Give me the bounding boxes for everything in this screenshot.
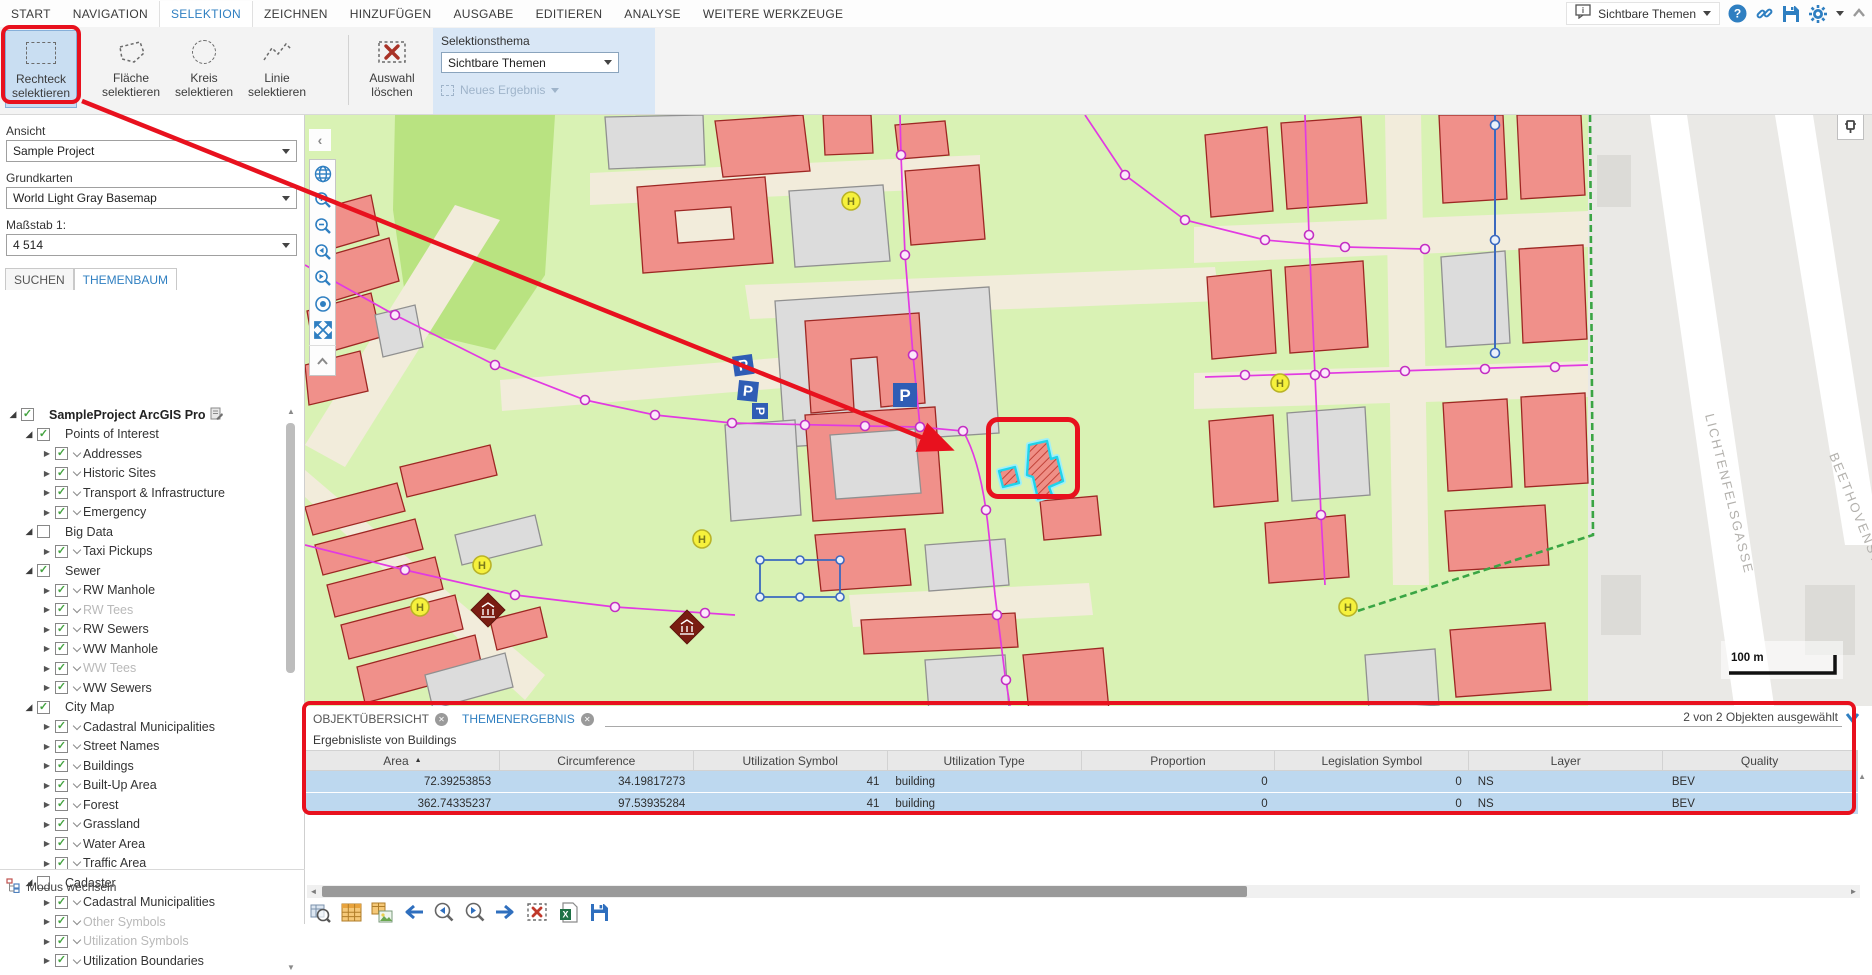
tree-expander-icon[interactable]: ▶	[40, 625, 54, 634]
chevron-down-icon	[604, 60, 612, 65]
tab-hinzufuegen[interactable]: HINZUFÜGEN	[339, 1, 443, 27]
dashed-zigzag-icon	[261, 36, 293, 68]
tree-expander-icon[interactable]: ▶	[40, 664, 54, 673]
tree-expander-icon[interactable]: ▶	[40, 839, 54, 848]
tree-expander-icon[interactable]: ▶	[40, 469, 54, 478]
dashed-polygon-icon	[115, 36, 147, 68]
tree-item[interactable]: ▶ ✓ Emergency	[0, 503, 283, 523]
table-cell: 0	[1276, 771, 1470, 792]
table-header-row: Area▲Circumference▲Utilization Symbol▲Ut…	[305, 750, 1858, 771]
panel-tabs: SUCHEN THEMENBAUM	[5, 268, 304, 290]
tree-checkbox[interactable]: ✓	[55, 935, 68, 948]
tree-checkbox[interactable]: ✓	[55, 837, 68, 850]
svg-text:?: ?	[1734, 7, 1741, 21]
globe-icon[interactable]	[312, 163, 333, 184]
tree-item[interactable]: ▶ ✓ Street Names	[0, 737, 283, 757]
zoom-to-record-icon[interactable]	[309, 901, 331, 923]
layer-legend-expand-icon[interactable]	[72, 839, 82, 849]
results-dock: OBJEKTÜBERSICHT ✕ THEMENERGEBNIS ✕ 2 von…	[305, 706, 1872, 924]
mode-switch-button[interactable]: Modus wechseln	[0, 869, 305, 896]
table-body: 72.3925385334.1981727341building00NSBEV3…	[305, 771, 1858, 815]
tabs-underline	[605, 726, 1842, 727]
project-edit-icon	[210, 407, 223, 423]
close-icon[interactable]: ✕	[435, 713, 448, 726]
locate-icon[interactable]	[312, 293, 333, 314]
tree-checkbox[interactable]: ✓	[55, 681, 68, 694]
layer-legend-expand-icon[interactable]	[72, 917, 82, 927]
table-cell: building	[887, 771, 1081, 792]
table-row[interactable]: 72.3925385334.1981727341building00NSBEV	[305, 771, 1858, 793]
layer-legend-expand-icon[interactable]	[72, 605, 82, 615]
tree-checkbox[interactable]: ✓	[55, 720, 68, 733]
table-cell: 97.53935284	[499, 793, 693, 814]
scrollbar-thumb[interactable]	[322, 886, 1247, 897]
column-header[interactable]: Utilization Type▲	[888, 751, 1082, 770]
column-header[interactable]: Circumference▲	[500, 751, 694, 770]
tree-expander-icon[interactable]: ▶	[40, 859, 54, 868]
map-canvas[interactable]: LICHTENFELSGASSE BEETHOVENSTR.	[305, 115, 1872, 712]
chevron-down-icon	[282, 149, 290, 154]
tree-checkbox[interactable]: ✓	[55, 623, 68, 636]
tree-expander-icon[interactable]: ▶	[40, 488, 54, 497]
view-label: Ansicht	[6, 124, 304, 138]
tree-item-label: Street Names	[83, 739, 159, 753]
tree-item-label: RW Manhole	[83, 583, 155, 597]
table-scroll-up-icon[interactable]: ▲	[1858, 772, 1866, 781]
tab-weitere-werkzeuge[interactable]: WEITERE WERKZEUGE	[692, 1, 854, 27]
close-icon[interactable]: ✕	[581, 713, 594, 726]
layer-legend-expand-icon[interactable]	[72, 800, 82, 810]
previous-record-icon[interactable]	[402, 901, 424, 923]
selection-theme-select[interactable]: Sichtbare Themen	[441, 52, 619, 73]
tab-themenergebnis[interactable]: THEMENERGEBNIS ✕	[454, 708, 600, 730]
result-list-title: Ergebnisliste von Buildings	[313, 733, 456, 747]
layer-legend-expand-icon[interactable]	[38, 410, 48, 420]
scale-select[interactable]: 4 514	[6, 234, 297, 256]
hydrant-icon: H	[416, 602, 424, 614]
tree-item-label: WW Sewers	[83, 681, 152, 695]
hydrant-icon: H	[698, 534, 706, 546]
scale-bar-label: 100 m	[1731, 652, 1764, 664]
info-bubble-icon: i	[1575, 4, 1591, 24]
tree-item-label: Grassland	[83, 817, 140, 831]
tree-expander-icon[interactable]: ▶	[40, 547, 54, 556]
layer-legend-expand-icon[interactable]	[72, 956, 82, 966]
basemap-select[interactable]: World Light Gray Basemap	[6, 187, 297, 209]
tree-expander-icon[interactable]: ▶	[40, 761, 54, 770]
tree-checkbox[interactable]: ✓	[55, 467, 68, 480]
tree-mode-icon	[6, 878, 20, 896]
zoom-previous-record-icon[interactable]	[433, 901, 455, 923]
tree-item[interactable]: ▶ ✓ WW Tees	[0, 659, 283, 679]
tree-expander-icon[interactable]: ▶	[40, 956, 54, 965]
tree-expander-icon[interactable]: ▶	[40, 683, 54, 692]
tree-item[interactable]: ▶ ✓ RW Sewers	[0, 620, 283, 640]
table-cell: NS	[1470, 793, 1664, 814]
tree-checkbox[interactable]: ✓	[55, 642, 68, 655]
layer-legend-expand-icon[interactable]	[72, 488, 82, 498]
tree-checkbox[interactable]: ✓	[37, 701, 50, 714]
table-row[interactable]: 362.7433523797.5393528441building00NSBEV	[305, 793, 1858, 815]
tree-item-label: WW Manhole	[83, 642, 158, 656]
tree-item[interactable]: ▶ ✓ WW Sewers	[0, 678, 283, 698]
tree-checkbox[interactable]: ✓	[55, 857, 68, 870]
tree-item-label: Built-Up Area	[83, 778, 157, 792]
next-record-icon[interactable]	[495, 901, 517, 923]
hydrant-icon: H	[478, 560, 486, 572]
select-circle-button[interactable]: Kreisselektieren	[168, 30, 240, 108]
layer-legend-expand-icon[interactable]	[72, 936, 82, 946]
share-link-button[interactable]	[1755, 4, 1774, 23]
layer-legend-expand-icon[interactable]	[72, 507, 82, 517]
tree-item[interactable]: ◢ ✓ Sewer	[0, 561, 283, 581]
tab-themenbaum[interactable]: THEMENBAUM	[74, 268, 177, 290]
layer-legend-expand-icon[interactable]	[72, 585, 82, 595]
tree-checkbox[interactable]: ✓	[55, 759, 68, 772]
hydrant-icon: H	[1276, 378, 1284, 390]
chevron-down-icon	[551, 88, 559, 93]
layer-legend-expand-icon[interactable]	[72, 449, 82, 459]
scroll-down-icon[interactable]: ▼	[284, 961, 298, 975]
tree-expander-icon[interactable]: ▶	[40, 605, 54, 614]
tree-checkbox[interactable]: ✓	[55, 954, 68, 967]
overview-map-icon[interactable]	[1837, 115, 1864, 140]
layer-legend-expand-icon[interactable]	[72, 624, 82, 634]
layer-legend-expand-icon[interactable]	[72, 761, 82, 771]
selection-status: 2 von 2 Objekten ausgewählt	[1683, 710, 1838, 724]
table-cell: 0	[1082, 771, 1276, 792]
tree-expander-icon[interactable]: ◢	[22, 429, 36, 440]
column-header[interactable]: Area▲	[306, 751, 500, 770]
layer-legend-expand-icon[interactable]	[72, 644, 82, 654]
chevron-down-icon	[282, 196, 290, 201]
layer-legend-expand-icon[interactable]	[72, 858, 82, 868]
tree-item-label: Big Data	[65, 525, 113, 539]
clear-selection-icon	[377, 36, 407, 68]
select-polygon-button[interactable]: Flächeselektieren	[95, 30, 167, 108]
tree-checkbox[interactable]: ✓	[55, 662, 68, 675]
svg-text:i: i	[1582, 6, 1584, 15]
tree-item-label: Emergency	[83, 505, 146, 519]
ribbon-toolbar: Rechteckselektieren Flächeselektieren Kr…	[0, 27, 1872, 115]
ribbon-separator	[348, 35, 349, 105]
tree-checkbox[interactable]: ✓	[55, 915, 68, 928]
tab-zeichnen[interactable]: ZEICHNEN	[253, 1, 339, 27]
zoom-out-icon[interactable]	[312, 215, 333, 236]
tree-checkbox[interactable]: ✓	[55, 545, 68, 558]
next-extent-icon[interactable]	[312, 267, 333, 288]
layer-legend-expand-icon[interactable]	[72, 819, 82, 829]
tree-expander-icon[interactable]: ▶	[40, 800, 54, 809]
tree-checkbox[interactable]: ✓	[55, 584, 68, 597]
tree-expander-icon[interactable]: ▶	[40, 508, 54, 517]
tree-item-label: Utilization Symbols	[83, 934, 189, 948]
tree-expander-icon[interactable]: ◢	[6, 409, 20, 420]
tree-expander-icon[interactable]: ▶	[40, 722, 54, 731]
column-header[interactable]: Utilization Symbol▲	[694, 751, 888, 770]
tree-item[interactable]: ▶ ✓ Taxi Pickups	[0, 542, 283, 562]
previous-extent-icon[interactable]	[312, 241, 333, 262]
tree-item-label: Cadastral Municipalities	[83, 895, 215, 909]
tree-expander-icon[interactable]: ▶	[40, 449, 54, 458]
tree-expander-icon[interactable]: ▶	[40, 781, 54, 790]
hydrant-icon: H	[1344, 602, 1352, 614]
tree-checkbox[interactable]: ✓	[21, 408, 34, 421]
dashed-circle-icon	[192, 36, 216, 68]
tree-item[interactable]: ▶ ✓ Transport & Infrastructure	[0, 483, 283, 503]
tree-item-label: SampleProject ArcGIS Pro	[49, 408, 206, 422]
table-cell: BEV	[1664, 771, 1858, 792]
tree-item-label: Addresses	[83, 447, 142, 461]
tree-item-label: Cadastral Municipalities	[83, 720, 215, 734]
tree-expander-icon[interactable]: ◢	[22, 526, 36, 537]
collapse-ribbon-icon[interactable]	[1852, 5, 1866, 23]
tree-item[interactable]: ▶ ✓ Buildings	[0, 756, 283, 776]
dashed-rectangle-icon	[26, 37, 56, 69]
layer-legend-expand-icon[interactable]	[72, 546, 82, 556]
tree-item-label: RW Tees	[83, 603, 133, 617]
tree-expander-icon[interactable]: ▶	[40, 917, 54, 926]
table-cell: 34.19817273	[499, 771, 693, 792]
settings-gear-button[interactable]	[1808, 4, 1828, 24]
tab-analyse[interactable]: ANALYSE	[613, 1, 692, 27]
table-map-link-icon[interactable]	[371, 901, 393, 923]
excel-export-icon[interactable]: X	[557, 901, 579, 923]
tree-item[interactable]: ▶ ✓ RW Manhole	[0, 581, 283, 601]
tree-item[interactable]: ◢ Big Data	[0, 522, 283, 542]
scroll-right-icon[interactable]: ►	[1847, 885, 1860, 898]
tab-navigation[interactable]: NAVIGATION	[62, 1, 159, 27]
tree-item[interactable]: ▶ ✓ Historic Sites	[0, 464, 283, 484]
zoom-in-icon[interactable]	[312, 189, 333, 210]
sort-asc-icon: ▲	[415, 757, 422, 764]
table-cell: 72.39253853	[305, 771, 499, 792]
map-toolbar	[309, 159, 336, 376]
layer-legend-expand-icon[interactable]	[72, 663, 82, 673]
tree-checkbox[interactable]: ✓	[37, 428, 50, 441]
basemap-label: Grundkarten	[6, 171, 304, 185]
tree-checkbox[interactable]: ✓	[55, 486, 68, 499]
tree-expander-icon[interactable]: ▶	[40, 586, 54, 595]
result-table: Area▲Circumference▲Utilization Symbol▲Ut…	[305, 750, 1858, 815]
tree-item[interactable]: ▶ ✓ Cadastral Municipalities	[0, 717, 283, 737]
scroll-up-icon[interactable]: ▲	[284, 405, 298, 419]
tab-selektion[interactable]: SELEKTION	[159, 1, 253, 27]
clear-table-selection-icon[interactable]	[526, 901, 548, 923]
table-cell: 362.74335237	[305, 793, 499, 814]
scroll-left-icon[interactable]: ◄	[307, 885, 320, 898]
ribbon-tab-bar: START NAVIGATION SELEKTION ZEICHNEN HINZ…	[0, 0, 1872, 27]
layer-legend-expand-icon[interactable]	[72, 897, 82, 907]
parking-icon: P	[742, 383, 754, 401]
tree-item-label: Points of Interest	[65, 427, 159, 441]
column-header[interactable]: Legislation Symbol▲	[1275, 751, 1469, 770]
gray-basemap-region: LICHTENFELSGASSE BEETHOVENSTR.	[1588, 115, 1872, 712]
layer-legend-expand-icon[interactable]	[54, 566, 64, 576]
left-panel: Ansicht Sample Project Grundkarten World…	[0, 115, 305, 924]
tree-item[interactable]: ▶ ✓ Built-Up Area	[0, 776, 283, 796]
tree-expander-icon[interactable]: ▶	[40, 644, 54, 653]
tree-checkbox[interactable]: ✓	[55, 779, 68, 792]
tree-item-label: RW Sewers	[83, 622, 149, 636]
select-rectangle-button[interactable]: Rechteckselektieren	[5, 30, 77, 108]
selection-theme-group: Selektionsthema Sichtbare Themen Neues E…	[433, 28, 655, 114]
tree-checkbox[interactable]: ✓	[55, 818, 68, 831]
tree-item[interactable]: ▶ ✓ Forest	[0, 795, 283, 815]
save-table-icon[interactable]	[588, 901, 610, 923]
tree-item[interactable]: ◢ ✓ SampleProject ArcGIS Pro	[0, 405, 283, 425]
tree-item-label: Historic Sites	[83, 466, 156, 480]
collapse-toolbar-icon[interactable]	[312, 351, 333, 372]
dashed-rectangle-icon	[441, 85, 454, 96]
tab-editieren[interactable]: EDITIEREN	[525, 1, 614, 27]
view-select[interactable]: Sample Project	[6, 140, 297, 162]
webgis-app: START NAVIGATION SELEKTION ZEICHNEN HINZ…	[0, 0, 1872, 924]
expand-panel-icon[interactable]	[1845, 711, 1860, 729]
scale-bar: 100 m	[1721, 641, 1843, 679]
layer-legend-expand-icon[interactable]	[54, 527, 64, 537]
tree-item-label: Transport & Infrastructure	[83, 486, 225, 500]
tab-objektuebersicht[interactable]: OBJEKTÜBERSICHT ✕	[305, 708, 454, 730]
table-cell: 0	[1082, 793, 1276, 814]
map-viewport[interactable]: LICHTENFELSGASSE BEETHOVENSTR.	[305, 115, 1872, 712]
layer-legend-expand-icon[interactable]	[72, 722, 82, 732]
tree-item[interactable]: ▶ ✓ Grassland	[0, 815, 283, 835]
tree-item[interactable]: ▶ ✓ Utilization Boundaries	[0, 951, 283, 971]
tree-item-label: Forest	[83, 798, 118, 812]
tree-item[interactable]: ◢ ✓ City Map	[0, 698, 283, 718]
table-cell: 41	[693, 771, 887, 792]
layer-legend-expand-icon[interactable]	[72, 683, 82, 693]
table-cell: 41	[693, 793, 887, 814]
tree-item[interactable]: ◢ ✓ Points of Interest	[0, 425, 283, 445]
tree-item[interactable]: ▶ ✓ RW Tees	[0, 600, 283, 620]
tree-item[interactable]: ▶ ✓ WW Manhole	[0, 639, 283, 659]
scale-label: Maßstab 1:	[6, 218, 304, 232]
collapse-panel-icon[interactable]: ‹	[309, 129, 331, 151]
column-header[interactable]: Quality▲	[1663, 751, 1857, 770]
tree-item-label: Taxi Pickups	[83, 544, 152, 558]
selection-theme-label: Selektionsthema	[441, 34, 647, 48]
hydrant-icon: H	[847, 196, 855, 208]
layer-legend-expand-icon[interactable]	[54, 429, 64, 439]
attribute-table-icon[interactable]	[340, 901, 362, 923]
tree-checkbox[interactable]: ✓	[37, 564, 50, 577]
tree-expander-icon[interactable]: ▶	[40, 937, 54, 946]
tree-item[interactable]: ▶ ✓ Addresses	[0, 444, 283, 464]
column-header[interactable]: Proportion▲	[1082, 751, 1276, 770]
tree-item[interactable]: ▶ ✓ Utilization Symbols	[0, 932, 283, 952]
tree-expander-icon[interactable]: ◢	[22, 702, 36, 713]
gear-dropdown-icon[interactable]	[1836, 11, 1844, 16]
tab-suchen[interactable]: SUCHEN	[5, 268, 74, 290]
tree-checkbox[interactable]: ✓	[55, 896, 68, 909]
table-toolbar: X	[309, 901, 610, 923]
tree-checkbox[interactable]: ✓	[55, 740, 68, 753]
full-extent-icon[interactable]	[312, 319, 333, 340]
tree-checkbox[interactable]: ✓	[55, 506, 68, 519]
tree-expander-icon[interactable]: ◢	[22, 565, 36, 576]
horizontal-scrollbar[interactable]: ◄ ►	[307, 885, 1860, 898]
layer-legend-expand-icon[interactable]	[72, 468, 82, 478]
svg-text:X: X	[562, 909, 568, 919]
parking-icon: P	[899, 386, 910, 405]
layer-legend-expand-icon[interactable]	[54, 702, 64, 712]
help-button[interactable]: ?	[1728, 4, 1747, 23]
column-header[interactable]: Layer▲	[1469, 751, 1663, 770]
tree-expander-icon[interactable]: ▶	[40, 820, 54, 829]
tree-item-label: Sewer	[65, 564, 100, 578]
tree-item-label: WW Tees	[83, 661, 136, 675]
tree-checkbox[interactable]: ✓	[55, 603, 68, 616]
tree-checkbox[interactable]: ✓	[55, 798, 68, 811]
chevron-down-icon	[282, 243, 290, 248]
tree-item-label: Utilization Boundaries	[83, 954, 204, 968]
scrollbar-thumb[interactable]	[286, 423, 295, 673]
tree-item[interactable]: ▶ ✓ Other Symbols	[0, 912, 283, 932]
tree-expander-icon[interactable]: ▶	[40, 742, 54, 751]
tree-checkbox[interactable]: ✓	[55, 447, 68, 460]
table-cell: building	[887, 793, 1081, 814]
tree-item-label: Buildings	[83, 759, 134, 773]
chevron-down-icon	[1703, 11, 1711, 16]
clear-selection-button[interactable]: Auswahllöschen	[356, 30, 428, 108]
tree-item-label: City Map	[65, 700, 114, 714]
tree-checkbox[interactable]	[37, 525, 50, 538]
table-cell: BEV	[1664, 793, 1858, 814]
new-result-button[interactable]: Neues Ergebnis	[441, 83, 647, 97]
table-cell: 0	[1276, 793, 1470, 814]
quick-theme-label: Sichtbare Themen	[1598, 7, 1696, 21]
tree-item[interactable]: ▶ ✓ Water Area	[0, 834, 283, 854]
tab-start[interactable]: START	[0, 1, 62, 27]
parking-icon: P	[753, 407, 767, 415]
tab-ausgabe[interactable]: AUSGABE	[442, 1, 524, 27]
save-button[interactable]	[1782, 5, 1800, 23]
zoom-next-record-icon[interactable]	[464, 901, 486, 923]
tree-item-label: Other Symbols	[83, 915, 166, 929]
table-cell: NS	[1470, 771, 1664, 792]
layer-legend-expand-icon[interactable]	[72, 741, 82, 751]
tree-expander-icon[interactable]: ▶	[40, 898, 54, 907]
tree-item-label: Water Area	[83, 837, 145, 851]
visible-themes-quick-select[interactable]: i Sichtbare Themen	[1566, 2, 1720, 25]
layer-legend-expand-icon[interactable]	[72, 780, 82, 790]
select-line-button[interactable]: Linieselektieren	[241, 30, 313, 108]
